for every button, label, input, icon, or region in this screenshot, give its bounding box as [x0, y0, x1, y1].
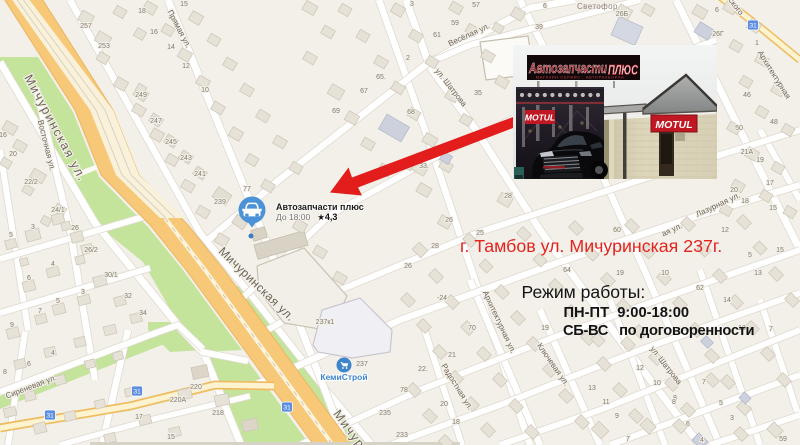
- svg-text:220А: 220А: [170, 397, 187, 404]
- svg-text:18: 18: [452, 419, 460, 426]
- svg-text:35: 35: [474, 90, 482, 97]
- svg-text:19: 19: [756, 157, 764, 164]
- svg-text:6: 6: [27, 275, 31, 282]
- svg-text:247: 247: [150, 118, 162, 125]
- svg-text:249: 249: [135, 92, 147, 99]
- svg-text:28: 28: [431, 243, 439, 250]
- svg-text:12: 12: [721, 227, 729, 234]
- svg-text:237к1: 237к1: [316, 319, 335, 326]
- svg-text:МАГАЗИН СЕРВИС : АВТОРАЗБОРКА: МАГАЗИН СЕРВИС : АВТОРАЗБОРКА: [536, 75, 624, 80]
- svg-text:33.: 33.: [419, 163, 429, 170]
- svg-text:13: 13: [588, 385, 596, 392]
- svg-text:235: 235: [379, 410, 391, 417]
- svg-text:14: 14: [167, 44, 175, 51]
- svg-text:20: 20: [9, 151, 17, 158]
- svg-text:28: 28: [504, 193, 512, 200]
- svg-text:8: 8: [672, 399, 676, 406]
- svg-text:32: 32: [124, 293, 132, 300]
- svg-text:4: 4: [51, 350, 55, 357]
- svg-text:З1: З1: [283, 405, 291, 412]
- svg-text:18: 18: [138, 8, 146, 15]
- svg-text:5: 5: [748, 252, 752, 259]
- svg-text:9: 9: [615, 413, 619, 420]
- svg-text:39: 39: [535, 24, 543, 31]
- svg-text:9: 9: [10, 322, 14, 329]
- svg-text:6: 6: [27, 361, 31, 368]
- svg-text:MOTUL: MOTUL: [655, 119, 692, 131]
- svg-text:15: 15: [776, 247, 784, 254]
- svg-text:69: 69: [332, 108, 340, 115]
- svg-text:253: 253: [98, 43, 110, 50]
- svg-text:67: 67: [360, 88, 368, 95]
- svg-text:19: 19: [541, 325, 549, 332]
- svg-text:62: 62: [696, 285, 704, 292]
- svg-text:MOTUL: MOTUL: [525, 113, 555, 123]
- svg-text:6: 6: [543, 3, 547, 10]
- svg-text:30/1: 30/1: [104, 272, 118, 279]
- svg-text:50: 50: [735, 125, 743, 132]
- svg-text:12: 12: [636, 365, 644, 372]
- svg-text:З1: З1: [46, 413, 54, 420]
- svg-text:237: 237: [356, 361, 368, 368]
- svg-text:7: 7: [626, 436, 630, 443]
- svg-text:11: 11: [602, 399, 609, 406]
- svg-text:24/1: 24/1: [51, 207, 65, 214]
- svg-text:15: 15: [769, 205, 777, 212]
- svg-text:17: 17: [135, 414, 143, 421]
- svg-text:59: 59: [779, 436, 787, 443]
- svg-text:61: 61: [433, 32, 441, 39]
- svg-text:16: 16: [0, 132, 7, 139]
- svg-text:5: 5: [9, 232, 13, 239]
- svg-text:220: 220: [190, 384, 202, 391]
- svg-text:5: 5: [56, 298, 60, 305]
- svg-text:233: 233: [396, 432, 408, 439]
- svg-text:20: 20: [730, 187, 738, 194]
- svg-text:10: 10: [653, 380, 661, 387]
- svg-text:3: 3: [81, 289, 85, 296]
- svg-text:22/2: 22/2: [24, 179, 38, 186]
- svg-text:12: 12: [182, 63, 190, 70]
- svg-text:5: 5: [719, 400, 723, 407]
- svg-text:241: 241: [194, 171, 206, 178]
- svg-text:10: 10: [201, 87, 209, 94]
- svg-text:57: 57: [472, 2, 480, 9]
- svg-text:218: 218: [212, 410, 224, 417]
- svg-text:26: 26: [445, 217, 453, 224]
- svg-text:78: 78: [400, 387, 408, 394]
- svg-text:8: 8: [3, 369, 7, 376]
- svg-text:3: 3: [730, 415, 734, 422]
- svg-text:48: 48: [770, 119, 778, 126]
- svg-text:15: 15: [167, 434, 175, 441]
- svg-text:20: 20: [440, 401, 448, 408]
- svg-text:4: 4: [51, 261, 55, 268]
- svg-text:7: 7: [38, 308, 42, 315]
- svg-text:7: 7: [702, 379, 706, 386]
- svg-text:26: 26: [404, 263, 412, 270]
- svg-text:26Б: 26Б: [616, 11, 629, 18]
- svg-text:257: 257: [80, 23, 92, 30]
- svg-text:10: 10: [661, 270, 669, 277]
- svg-text:3: 3: [410, 1, 414, 8]
- svg-text:13: 13: [754, 270, 762, 277]
- svg-text:19: 19: [616, 270, 624, 277]
- svg-text:18: 18: [741, 198, 749, 205]
- svg-text:21: 21: [448, 352, 456, 359]
- svg-text:16: 16: [150, 29, 158, 36]
- svg-text:7: 7: [769, 326, 773, 333]
- svg-text:64: 64: [563, 267, 571, 274]
- svg-text:34: 34: [139, 310, 147, 317]
- svg-text:14: 14: [723, 297, 731, 304]
- svg-text:65.: 65.: [376, 74, 386, 81]
- svg-text:6: 6: [686, 421, 690, 428]
- svg-text:15: 15: [180, 1, 188, 8]
- svg-text:4: 4: [700, 437, 704, 444]
- svg-text:З1: З1: [749, 23, 757, 30]
- svg-text:6: 6: [715, 7, 719, 14]
- svg-text:1: 1: [755, 40, 759, 47]
- svg-text:2: 2: [406, 55, 410, 62]
- svg-text:22.: 22.: [418, 366, 428, 373]
- svg-text:26: 26: [71, 225, 79, 232]
- svg-text:59: 59: [451, 20, 459, 27]
- svg-text:-24: -24: [437, 295, 447, 302]
- svg-text:26/2: 26/2: [84, 247, 98, 254]
- svg-text:70: 70: [468, 325, 476, 332]
- svg-text:26Г: 26Г: [712, 31, 724, 38]
- svg-text:243: 243: [180, 155, 192, 162]
- svg-text:68: 68: [407, 109, 415, 116]
- svg-text:КемиСтрой: КемиСтрой: [320, 372, 367, 382]
- svg-text:46: 46: [743, 92, 751, 99]
- svg-text:60: 60: [613, 227, 621, 234]
- svg-text:245: 245: [165, 139, 177, 146]
- svg-text:21А: 21А: [741, 149, 754, 156]
- svg-text:З1: З1: [133, 389, 141, 396]
- svg-text:3: 3: [31, 224, 35, 231]
- svg-text:Светофор: Светофор: [577, 2, 618, 11]
- svg-text:17: 17: [766, 180, 774, 187]
